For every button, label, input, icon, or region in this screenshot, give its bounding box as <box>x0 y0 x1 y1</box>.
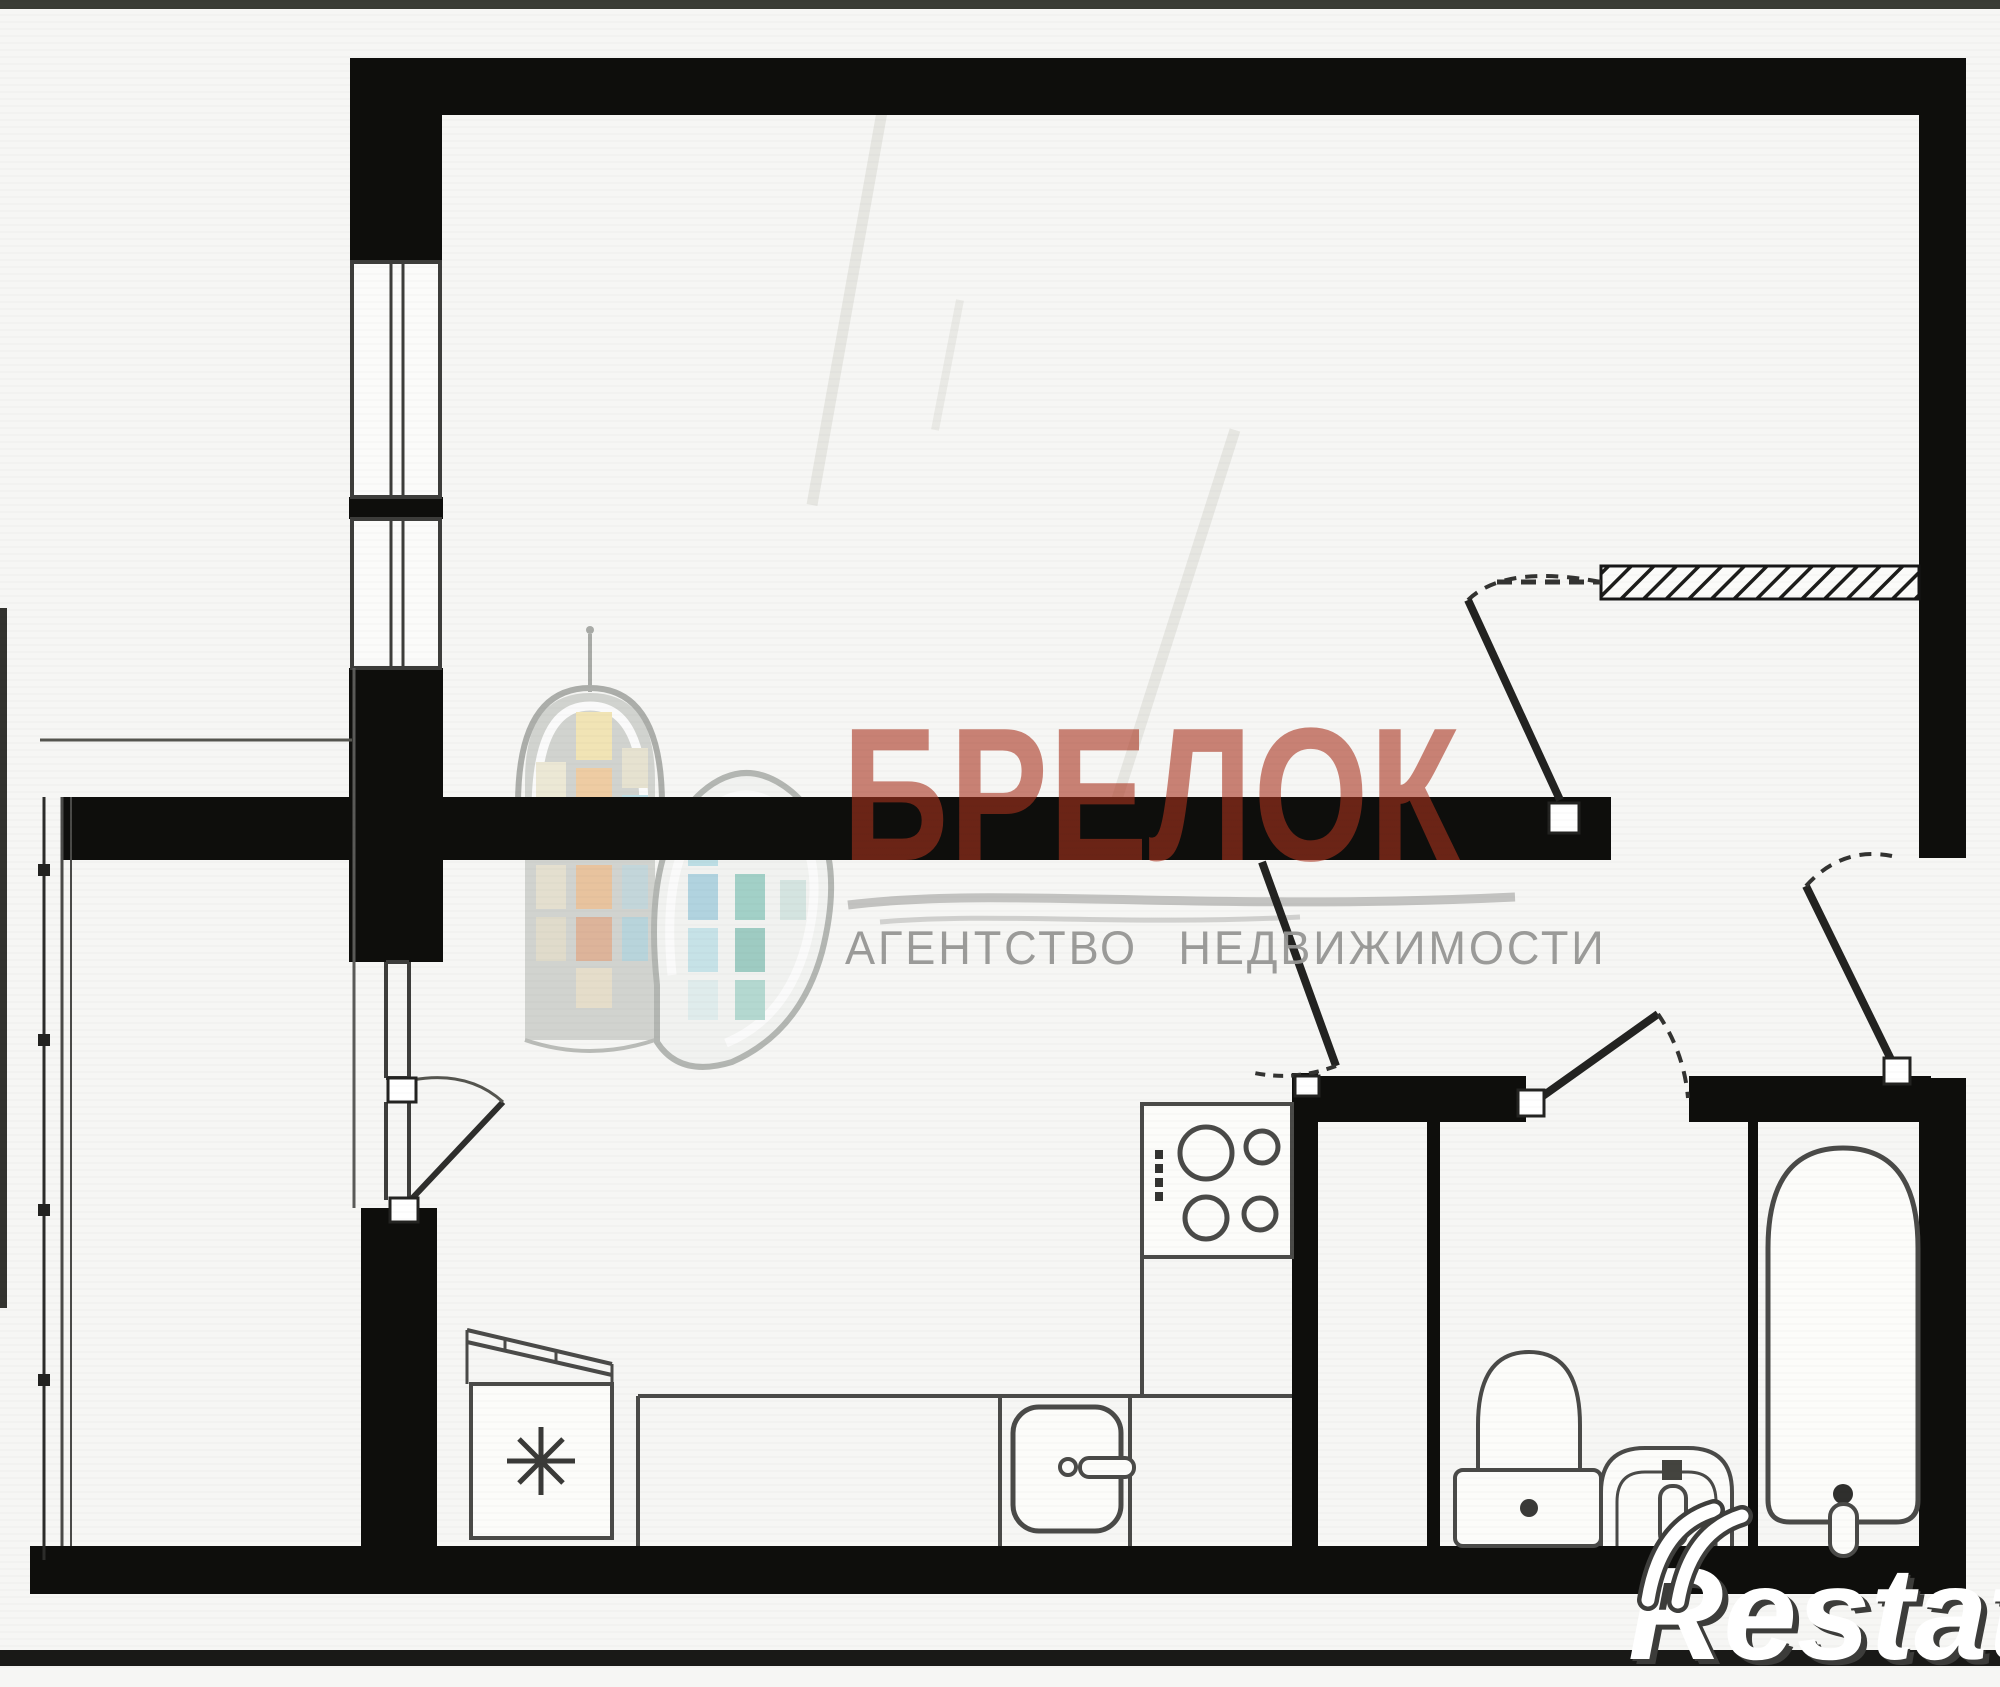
window-transom-bar <box>349 497 443 519</box>
wall-wc-left <box>1427 1122 1440 1546</box>
wall-balcony-kitchen <box>361 1208 437 1548</box>
wall-wc-bath-partition <box>1748 1122 1758 1546</box>
stove-icon <box>1142 1104 1292 1257</box>
watermark-tagline-text: АГЕНТСТВО НЕДВИЖИМОСТИ <box>845 924 1607 971</box>
kitchen-sink-icon <box>1013 1407 1134 1531</box>
wall-right-lower <box>1919 1078 1966 1546</box>
window-living-upper <box>352 262 440 497</box>
entry-door-icon <box>1601 566 1919 599</box>
wall-left-corner <box>350 58 442 264</box>
wall-kitchen-right <box>1292 1073 1318 1548</box>
wall-right-upper <box>1919 58 1966 858</box>
wall-left-column <box>349 668 443 962</box>
watermark-brand-text: БРЕЛОК <box>842 700 1461 890</box>
wall-top <box>350 58 1966 115</box>
bathtub-icon <box>1768 1148 1918 1556</box>
window-living-lower <box>352 519 440 668</box>
floor-plan-image: БРЕЛОК АГЕНТСТВО НЕДВИЖИМОСТИ Restate <box>0 0 2000 1669</box>
wall-hall-left <box>1292 1076 1526 1122</box>
wash-basin-icon <box>1601 1448 1732 1546</box>
restate-logo-text: Restate <box>1628 1548 2000 1680</box>
